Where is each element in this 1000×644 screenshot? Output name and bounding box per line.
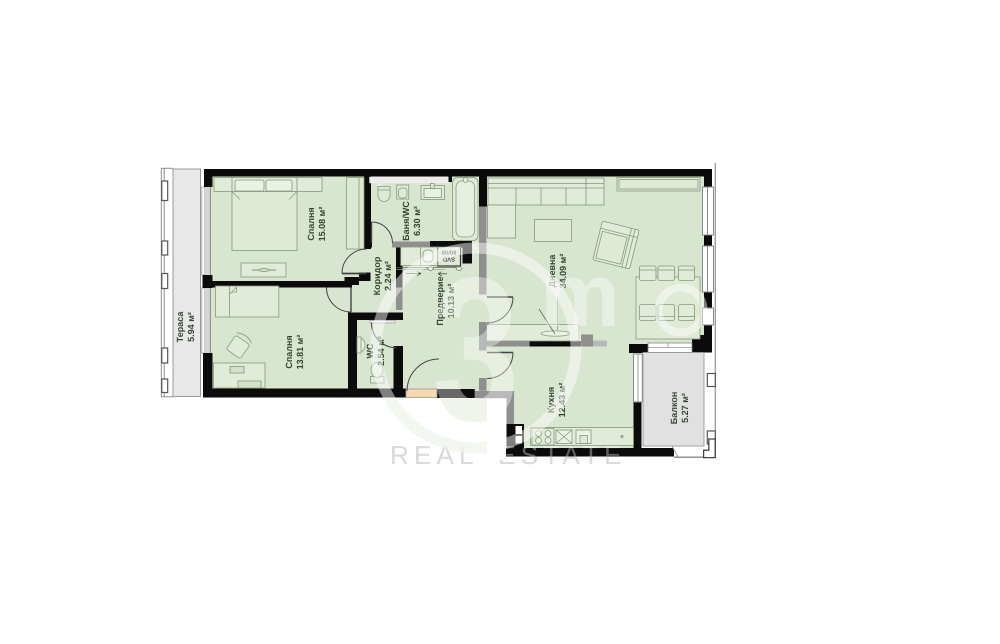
svg-text:Балкон: Балкон [669, 392, 679, 425]
svg-text:3: 3 [433, 235, 520, 464]
svg-text:Коридор: Коридор [372, 256, 382, 295]
svg-text:Спалня: Спалня [306, 207, 316, 240]
svg-text:m: m [540, 246, 620, 346]
svg-text:6.30 м²: 6.30 м² [412, 206, 422, 236]
svg-text:Спалня: Спалня [284, 335, 294, 368]
svg-text:5.94 м²: 5.94 м² [186, 312, 196, 342]
svg-text:15.08 м²: 15.08 м² [317, 207, 327, 242]
svg-text:13.81 м²: 13.81 м² [295, 335, 305, 370]
svg-text:Тераса: Тераса [175, 311, 185, 343]
svg-text:Баня/WC: Баня/WC [401, 201, 411, 241]
svg-text:REAL ESTATE: REAL ESTATE [390, 440, 627, 470]
svg-text:5.27 м²: 5.27 м² [680, 393, 690, 423]
